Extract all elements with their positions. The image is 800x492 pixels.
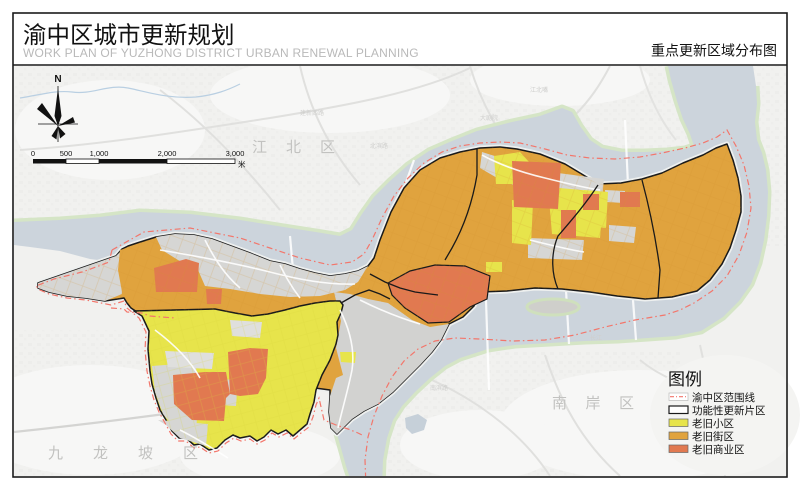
svg-text:渝中区城市更新规划: 渝中区城市更新规划 xyxy=(23,22,235,48)
svg-text:渝中区范围线: 渝中区范围线 xyxy=(692,391,755,404)
svg-text:大剧院: 大剧院 xyxy=(480,114,498,122)
svg-text:北滨路: 北滨路 xyxy=(370,142,388,150)
svg-text:米: 米 xyxy=(238,159,246,169)
svg-text:3,000: 3,000 xyxy=(226,149,245,158)
svg-text:长江: 长江 xyxy=(590,334,602,342)
svg-text:重点更新区域分布图: 重点更新区域分布图 xyxy=(651,43,777,59)
svg-text:南岸区: 南岸区 xyxy=(552,395,653,412)
svg-text:建新西路: 建新西路 xyxy=(300,109,324,117)
svg-text:老旧商业区: 老旧商业区 xyxy=(692,443,745,456)
svg-text:老旧街区: 老旧街区 xyxy=(692,430,734,443)
svg-text:WORK PLAN OF YUZHONG DISTRICT: WORK PLAN OF YUZHONG DISTRICT URBAN RENE… xyxy=(23,46,419,60)
svg-text:江北区: 江北区 xyxy=(252,139,354,156)
svg-text:九龙坡区: 九龙坡区 xyxy=(48,445,228,462)
svg-text:2,000: 2,000 xyxy=(158,149,177,158)
svg-text:1,000: 1,000 xyxy=(90,149,109,158)
svg-text:0: 0 xyxy=(31,149,35,158)
svg-text:江北嘴: 江北嘴 xyxy=(530,86,548,94)
svg-text:南滨路: 南滨路 xyxy=(430,384,448,392)
svg-text:老旧小区: 老旧小区 xyxy=(692,417,734,430)
svg-text:500: 500 xyxy=(60,149,73,158)
svg-text:N: N xyxy=(54,74,61,85)
svg-text:图例: 图例 xyxy=(668,370,702,389)
svg-text:功能性更新片区: 功能性更新片区 xyxy=(692,404,766,417)
